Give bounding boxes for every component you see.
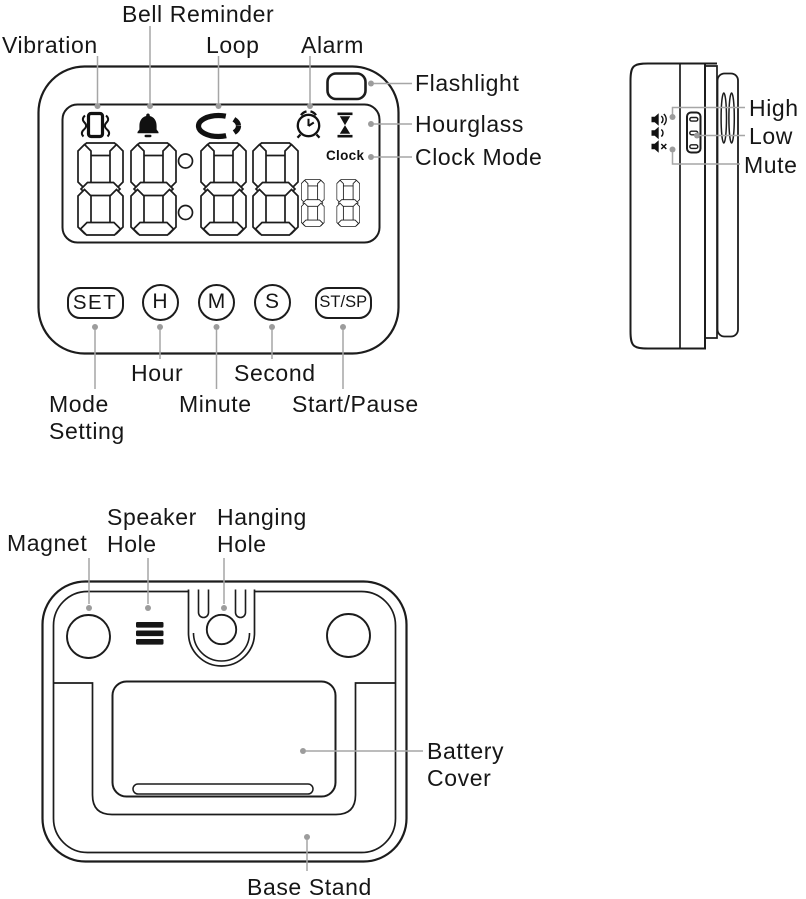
callout-second: Second	[234, 360, 316, 387]
alarm-clock-icon	[298, 111, 320, 137]
speaker-hole-bars	[136, 622, 164, 645]
callout-clock-mode: Clock Mode	[415, 144, 542, 171]
start-stop-button: ST/SP	[315, 287, 373, 319]
side-volume-icons	[652, 113, 667, 152]
callout-loop: Loop	[206, 32, 260, 59]
colon-separator	[179, 154, 193, 220]
set-button: SET	[67, 287, 124, 319]
second-button: S	[254, 284, 291, 321]
callout-hourglass: Hourglass	[415, 111, 524, 138]
callout-magnet: Magnet	[7, 530, 87, 557]
volume-low-icon	[652, 127, 663, 139]
lcd-status-icons	[82, 111, 353, 137]
callout-mute: Mute	[744, 152, 798, 179]
callout-hanging-hole: Hanging Hole	[217, 504, 322, 557]
loop-icon	[199, 116, 239, 137]
flashlight-window	[328, 74, 366, 100]
hanging-hole	[207, 615, 236, 644]
side-view-body	[631, 64, 739, 349]
volume-high-icon	[652, 113, 667, 125]
callout-mode-setting: Mode Setting	[49, 391, 144, 444]
vibration-icon	[82, 114, 109, 137]
callout-bell-reminder: Bell Reminder	[122, 1, 274, 28]
callout-vibration: Vibration	[2, 32, 98, 59]
callout-hour: Hour	[131, 360, 183, 387]
callout-speaker-hole: Speaker Hole	[107, 504, 212, 557]
hourglass-icon	[338, 114, 353, 136]
callout-low: Low	[749, 123, 793, 150]
base-stand-recess	[54, 683, 396, 815]
diagram-line-art	[0, 0, 806, 899]
callout-alarm: Alarm	[301, 32, 364, 59]
timer-parts-diagram: Clock SET H M S ST/SP Bell Reminder Vibr…	[0, 0, 806, 899]
hour-button: H	[142, 284, 179, 321]
clock-mode-indicator: Clock	[326, 148, 364, 163]
callout-base-stand: Base Stand	[247, 874, 372, 899]
bell-icon	[138, 114, 159, 138]
back-view-body	[43, 582, 407, 862]
volume-mute-icon	[652, 140, 667, 152]
lcd-digits	[78, 143, 360, 235]
callout-high: High	[749, 95, 799, 122]
callout-start-pause: Start/Pause	[292, 391, 419, 418]
callout-minute: Minute	[179, 391, 252, 418]
leader-dots	[86, 81, 700, 841]
battery-cover-notch	[133, 784, 313, 794]
callout-battery-cover: Battery Cover	[427, 738, 527, 791]
magnet-left	[67, 615, 110, 658]
battery-cover	[113, 682, 336, 797]
callout-flashlight: Flashlight	[415, 70, 519, 97]
minute-button: M	[198, 284, 235, 321]
magnet-right	[327, 614, 370, 657]
